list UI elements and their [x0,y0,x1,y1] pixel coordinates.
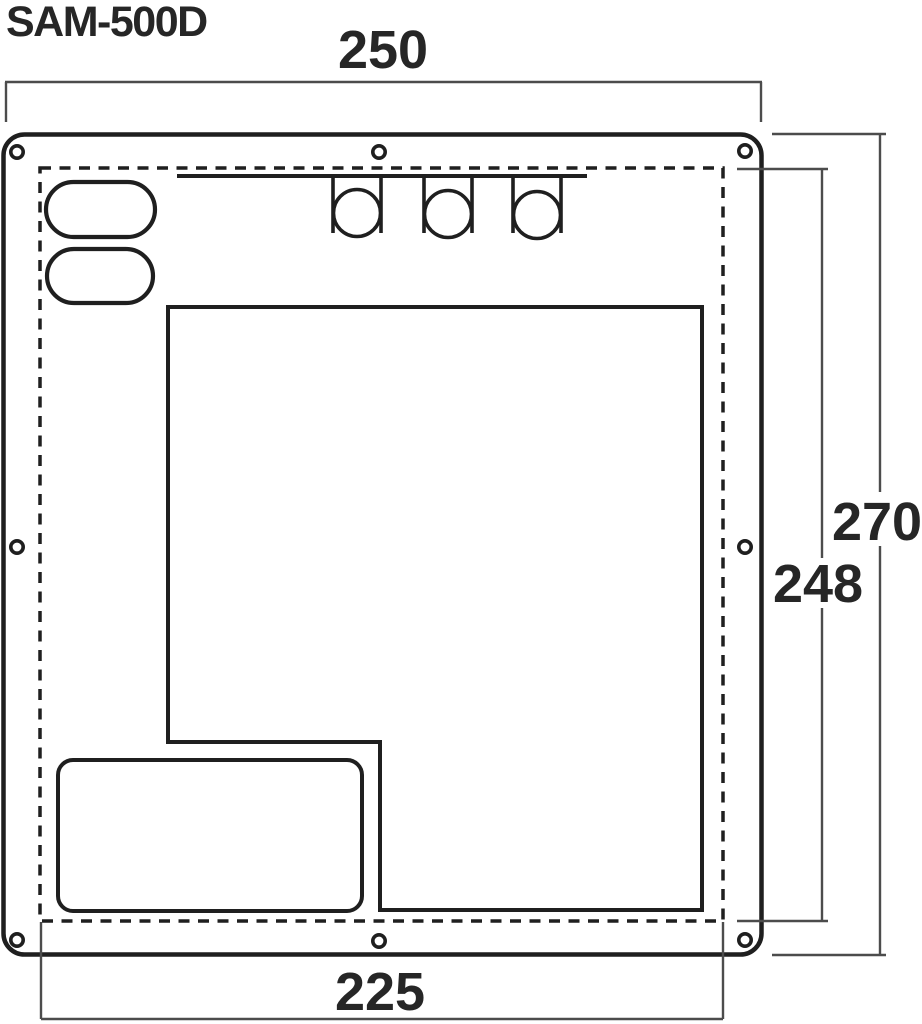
panel-outline [4,135,762,955]
dimension-outer-height: 270 [772,134,922,955]
screw-hole-top-right [739,145,751,157]
screw-hole-mid-left [11,541,23,553]
screw-hole-bottom-left [11,934,23,946]
dim-248-label: 248 [773,554,863,614]
model-title: SAM-500D [6,0,207,46]
knob-1-circle [334,190,381,237]
knob-2-circle [425,191,472,238]
dim-250-label: 250 [338,20,428,80]
screw-hole-bottom-center [373,935,385,947]
screw-hole-mid-right [739,541,751,553]
screw-hole-bottom-right [739,934,751,946]
drawing-canvas: 250 225 270 248 SAM-500D [0,0,922,1024]
screw-hole-top-left [11,146,23,158]
screw-hole-top-center [373,146,385,158]
dim-225-label: 225 [335,962,425,1022]
knob-3-circle [514,192,561,239]
dim-270-label: 270 [832,492,922,552]
technical-drawing-sam-500d: 250 225 270 248 SAM-500D [0,0,922,1024]
